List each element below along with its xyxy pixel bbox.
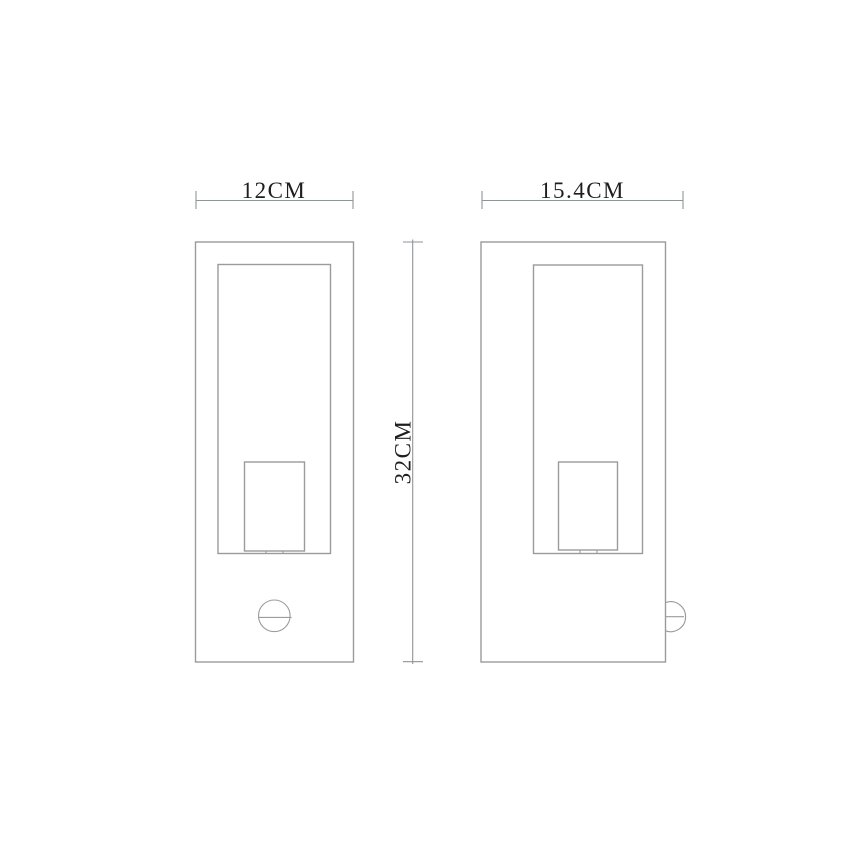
height-dimension: 32CM [391, 240, 424, 665]
side-view-lamp-window [534, 265, 643, 554]
side-view-body-outline [481, 242, 666, 662]
side-view-bulb-socket [559, 462, 618, 550]
front-view-sensor-circle [259, 600, 291, 632]
front-view-body-outline [196, 242, 354, 662]
front-view [196, 242, 354, 662]
front-width-dimension: 12CM [196, 178, 353, 209]
dimension-drawing-sheet: 12CM 15.4CM 32CM [0, 0, 868, 868]
front-view-bulb-socket [245, 462, 305, 551]
side-depth-dimension: 15.4CM [482, 178, 683, 209]
side-view [481, 242, 686, 662]
side-depth-label: 15.4CM [540, 178, 625, 203]
front-view-lamp-window [218, 265, 331, 554]
height-label: 32CM [391, 420, 416, 485]
front-width-label: 12CM [242, 178, 307, 203]
